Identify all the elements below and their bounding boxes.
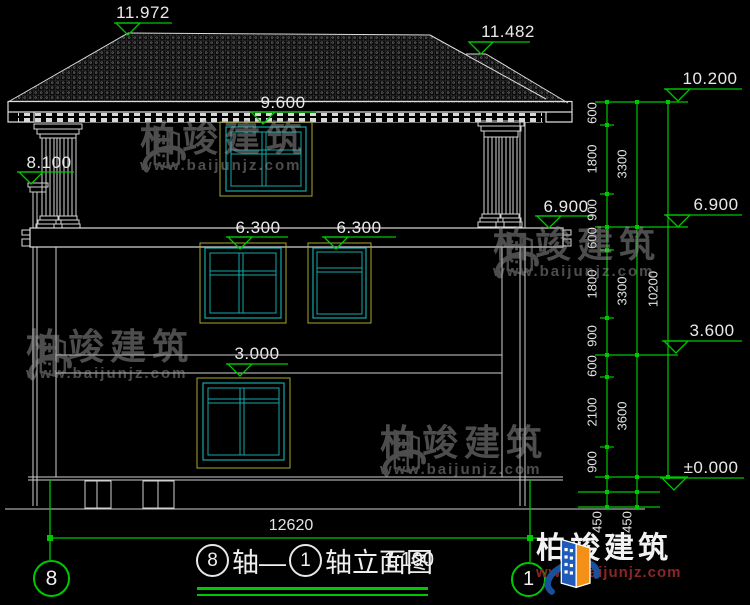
dim-width-12620: 12620 [269,517,314,535]
dim-600-1: 600 [585,102,600,124]
dim-1800-1: 1800 [585,145,600,174]
elev-floor2-chain: 6.900 [693,195,738,215]
drawing-scale: 1:100 [384,549,434,572]
watermark: 柏竣建筑 www.baijunjz.com [26,328,194,382]
elev-ground: ±0.000 [684,458,739,478]
title-axis-1-bubble: 1 [289,544,322,577]
axis-bubble-8: 8 [33,560,70,597]
watermark-logo-icon [26,328,74,386]
porch-columns-right [478,121,524,227]
elev-window2b: 6.300 [336,218,381,238]
dim-3300-2: 3300 [615,277,630,306]
axis-bubble-8-label: 8 [46,567,58,591]
floor-band [22,228,571,247]
elev-window2a: 6.300 [235,218,280,238]
elev-porch-beam: 8.100 [26,153,71,173]
title-axis-8-bubble: 8 [196,544,229,577]
watermark: 柏竣建筑 www.baijunjz.com [493,226,661,280]
elev-ridge-main: 11.972 [116,3,170,23]
ground-lines [5,477,645,509]
dim-450-2: 450 [620,511,635,533]
floor2-window-b [308,243,371,323]
watermark: 柏竣建筑 www.baijunjz.com [140,120,308,174]
elev-attic-window: 9.600 [260,93,305,113]
dim-2100: 2100 [585,398,600,427]
watermark: 柏竣建筑 www.baijunjz.com [380,424,548,478]
porch-columns-left [34,124,82,228]
dim-3300-1: 3300 [615,150,630,179]
watermark-logo-icon [493,226,541,284]
dim-3600: 3600 [615,402,630,431]
title-between: 轴— [232,541,286,580]
marker-6900-chain [664,215,742,227]
elev-floor2-building: 6.900 [543,197,588,217]
title-underline-thick [197,587,428,590]
dim-900-2: 900 [585,325,600,347]
marker-3600 [662,341,742,353]
elev-roof-top-chain: 10.200 [683,69,738,89]
marker-10200 [664,89,742,101]
column-shaft-flutes [484,137,517,214]
elev-ridge-secondary: 11.482 [481,22,535,42]
elevation-drawing [0,0,750,605]
watermark-logo-icon [380,424,428,482]
marker-ridge-secondary [469,42,530,54]
title-underline-thin [197,594,428,596]
brand-logo-icon [536,532,610,598]
watermark-logo-icon [140,120,188,178]
axis-bubble-1-label: 1 [523,568,534,591]
marker-3000 [226,364,288,376]
floor2-window-a [200,243,286,323]
cad-elevation-screenshot: 11.972 11.482 9.600 8.100 10.200 6.900 6… [0,0,750,605]
dim-900-3: 900 [585,451,600,473]
elev-3600-chain: 3.600 [689,321,734,341]
dim-450-1: 450 [590,511,605,533]
marker-0000 [660,478,744,490]
dim-900-1: 900 [585,199,600,221]
column-shaft-flutes [42,138,76,216]
floor1-window [197,378,290,468]
elev-window1: 3.000 [234,344,279,364]
dim-600-3: 600 [585,355,600,377]
brand-logo: 柏竣建筑 www.baijunjz.com [536,532,681,581]
